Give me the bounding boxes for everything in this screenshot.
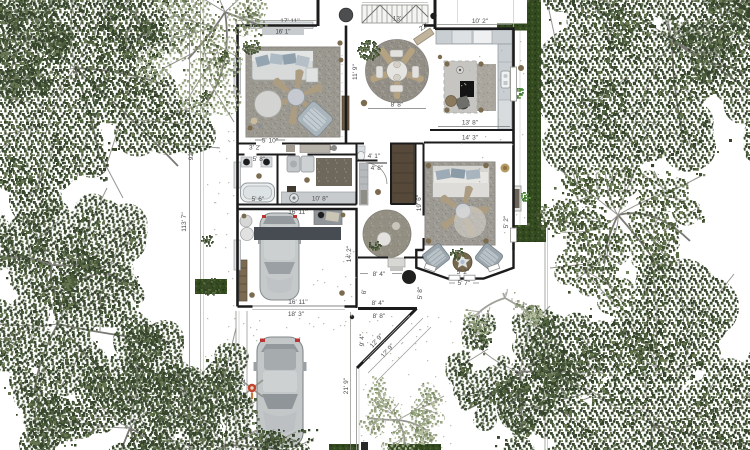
svg-text:10' 2'': 10' 2'' xyxy=(472,18,488,25)
svg-text:8' 8'': 8' 8'' xyxy=(391,102,404,109)
svg-text:5' 7'': 5' 7'' xyxy=(458,280,471,287)
svg-text:3' 2': 3' 2' xyxy=(249,145,261,152)
svg-text:6': 6' xyxy=(361,290,368,295)
svg-text:8' 4'': 8' 4'' xyxy=(373,271,386,278)
svg-text:14' 3'': 14' 3'' xyxy=(462,135,478,142)
svg-text:10' 8'': 10' 8'' xyxy=(312,196,328,203)
svg-text:18' 3'': 18' 3'' xyxy=(288,311,304,318)
svg-text:5' 10'': 5' 10'' xyxy=(262,138,278,145)
svg-text:5' 8'': 5' 8'' xyxy=(253,156,266,163)
svg-text:8' 8'': 8' 8'' xyxy=(373,313,386,320)
svg-text:113' 7'': 113' 7'' xyxy=(181,212,188,232)
svg-text:16' 1'': 16' 1'' xyxy=(275,30,290,36)
svg-text:21' 9'': 21' 9'' xyxy=(343,378,350,394)
svg-text:9' 4'': 9' 4'' xyxy=(359,334,366,347)
svg-text:11' 9'': 11' 9'' xyxy=(352,64,359,80)
svg-text:5' 2'': 5' 2'' xyxy=(503,216,510,229)
svg-text:16' 11'': 16' 11'' xyxy=(288,299,308,306)
svg-text:8' 4'': 8' 4'' xyxy=(372,300,385,307)
svg-text:13': 13' xyxy=(393,16,401,23)
svg-text:5' 8'': 5' 8'' xyxy=(417,287,424,300)
svg-text:4' 8'': 4' 8'' xyxy=(371,165,384,172)
svg-text:4' 1'': 4' 1'' xyxy=(368,153,381,160)
svg-text:5' 6'': 5' 6'' xyxy=(252,196,265,203)
svg-text:14' 2'': 14' 2'' xyxy=(346,246,353,262)
svg-text:13' 8'': 13' 8'' xyxy=(462,120,478,127)
svg-text:19' 6'': 19' 6'' xyxy=(416,195,423,211)
